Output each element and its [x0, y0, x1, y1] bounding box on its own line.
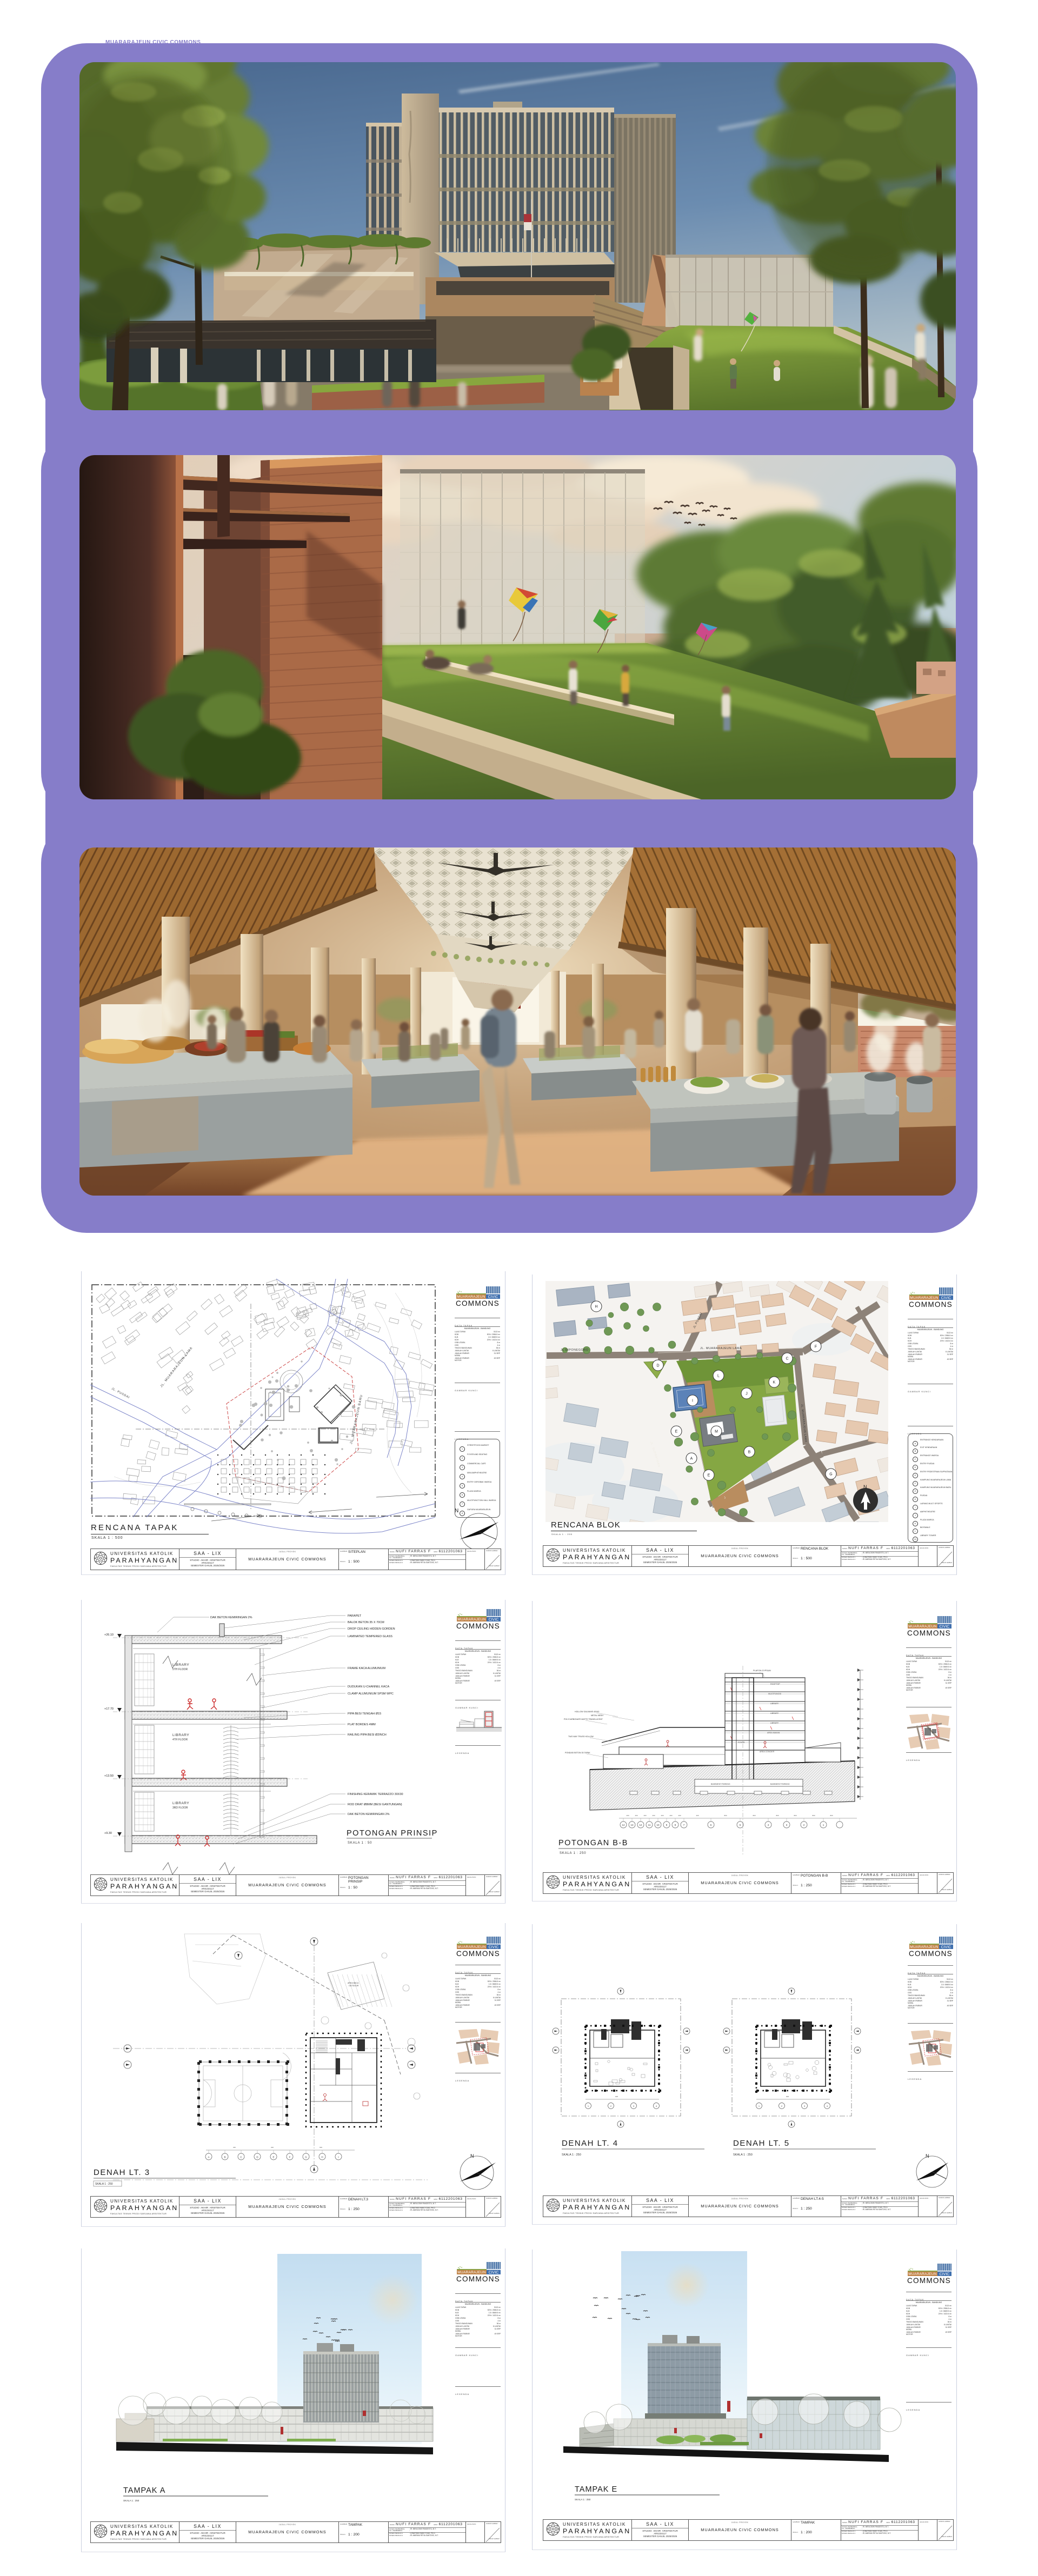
svg-text:3: 3 — [786, 1824, 788, 1826]
svg-text:MUARARAJEUN: MUARARAJEUN — [908, 1625, 936, 1629]
svg-text:JL. MUARARAJEUN BARU: JL. MUARARAJEUN BARU — [350, 1394, 363, 1445]
svg-text:TAMPAK E: TAMPAK E — [575, 2485, 617, 2494]
svg-text:COMMONS: COMMONS — [456, 1299, 500, 1307]
svg-text:4: 4 — [656, 2105, 657, 2107]
svg-text:800: 800 — [724, 1814, 727, 1817]
svg-text:E: E — [675, 1430, 678, 1434]
svg-text:N: N — [926, 2153, 929, 2159]
svg-text:CIVIC: CIVIC — [489, 2271, 499, 2274]
svg-text:COMMONS: COMMONS — [909, 1300, 953, 1309]
svg-text:3: 3 — [804, 2105, 806, 2107]
svg-text:MUARARAJEUN: MUARARAJEUN — [457, 1945, 485, 1949]
svg-text:D: D — [256, 2156, 258, 2159]
svg-text:A: A — [690, 1457, 693, 1461]
svg-text:N: N — [863, 1484, 867, 1490]
svg-text:LIBRARY: LIBRARY — [770, 1722, 779, 1724]
svg-text:12: 12 — [639, 1824, 642, 1826]
svg-text:10: 10 — [656, 1824, 660, 1826]
svg-text:SKALA 1 : 250: SKALA 1 : 250 — [575, 2498, 591, 2501]
svg-text:B: B — [224, 2156, 225, 2159]
svg-text:MULTIFUNGSI: MULTIFUNGSI — [768, 1693, 781, 1695]
svg-text:MUARARAJEUN: MUARARAJEUN — [457, 1618, 485, 1621]
svg-text:POTONGAN PRINSIP: POTONGAN PRINSIP — [347, 1829, 438, 1838]
svg-text:PIPA BESI TENGAH Ø15: PIPA BESI TENGAH Ø15 — [348, 1712, 381, 1716]
svg-text:COMMONS: COMMONS — [907, 1629, 951, 1637]
svg-text:1: 1 — [588, 2105, 589, 2107]
svg-text:+26.10: +26.10 — [104, 1633, 114, 1637]
svg-text:CIVIC: CIVIC — [940, 1625, 950, 1629]
svg-text:+9.30: +9.30 — [104, 1832, 112, 1835]
svg-text:CIVIC: CIVIC — [940, 2272, 950, 2276]
svg-text:4TH FLOOR: 4TH FLOOR — [172, 1738, 188, 1741]
svg-text:PLAT BORDES 4MM: PLAT BORDES 4MM — [348, 1723, 376, 1726]
svg-text:CIVIC: CIVIC — [489, 1618, 499, 1621]
svg-text:DENAH LT. 5: DENAH LT. 5 — [733, 2139, 790, 2148]
svg-text:B: B — [748, 1451, 751, 1454]
svg-text:SKALA 1 : 250: SKALA 1 : 250 — [95, 2183, 113, 2186]
svg-text:LIBRARY: LIBRARY — [770, 1712, 779, 1714]
svg-text:AREA MAKAN: AREA MAKAN — [767, 1732, 780, 1734]
svg-text:400: 400 — [678, 1814, 681, 1817]
svg-text:E: E — [272, 2156, 274, 2159]
svg-text:SKALA 1 : 250: SKALA 1 : 250 — [123, 2499, 139, 2502]
svg-text:14: 14 — [622, 1824, 625, 1826]
svg-text:400: 400 — [643, 1814, 646, 1817]
svg-text:2: 2 — [610, 2105, 612, 2107]
svg-text:LIBRARY: LIBRARY — [770, 1703, 779, 1705]
svg-text:F: F — [289, 2156, 291, 2159]
svg-text:A: A — [208, 2156, 209, 2159]
svg-text:1: 1 — [823, 1824, 824, 1826]
svg-text:CIVIC: CIVIC — [489, 1945, 499, 1949]
svg-text:MUARARAJEUN: MUARARAJEUN — [457, 2271, 485, 2274]
svg-text:AREA CONCIER: AREA CONCIER — [760, 1751, 775, 1753]
svg-text:LIBRARY: LIBRARY — [172, 1733, 189, 1737]
svg-text:H: H — [321, 2156, 323, 2159]
svg-text:JL. PUSDAI: JL. PUSDAI — [111, 1387, 130, 1399]
svg-text:1: 1 — [758, 2105, 760, 2107]
svg-text:4: 4 — [768, 1824, 769, 1826]
svg-text:908: 908 — [786, 2095, 789, 2098]
svg-text:F: F — [815, 1345, 817, 1349]
svg-text:JL DIPONEGORO: JL DIPONEGORO — [561, 1349, 589, 1352]
svg-text:METAL MESH: METAL MESH — [591, 1714, 603, 1717]
svg-text:+13.50: +13.50 — [104, 1774, 114, 1778]
svg-text:7: 7 — [683, 1824, 685, 1826]
svg-text:400: 400 — [652, 1814, 655, 1817]
svg-text:OUTDOOR: OUTDOOR — [349, 1985, 359, 1987]
svg-text:CIVIC: CIVIC — [941, 1296, 951, 1300]
svg-text:LIBRARY: LIBRARY — [172, 1663, 189, 1667]
svg-text:DENAH LT. 4: DENAH LT. 4 — [562, 2139, 618, 2148]
svg-text:BASEMENT PARKING: BASEMENT PARKING — [770, 1783, 790, 1785]
svg-text:MUARARAJEUN: MUARARAJEUN — [457, 1295, 485, 1299]
svg-text:4: 4 — [827, 2105, 828, 2107]
svg-text:PONDASI BETON 35 TAPAK: PONDASI BETON 35 TAPAK — [565, 1752, 590, 1754]
svg-text:SKALA 1 : 250: SKALA 1 : 250 — [562, 2153, 581, 2157]
svg-text:I: I — [692, 1399, 693, 1403]
svg-text:E: E — [708, 1474, 710, 1478]
svg-text:J: J — [746, 1392, 748, 1396]
svg-text:I: I — [338, 2156, 338, 2159]
svg-text:LAMINATED TEMPERED GLASS: LAMINATED TEMPERED GLASS — [348, 1635, 392, 1638]
svg-text:+17.70: +17.70 — [104, 1707, 114, 1711]
svg-text:400: 400 — [635, 1814, 637, 1817]
svg-text:800: 800 — [812, 1814, 815, 1817]
svg-text:DROP CEILING HIDDEN GORDEN: DROP CEILING HIDDEN GORDEN — [348, 1627, 395, 1631]
svg-text:800: 800 — [794, 1814, 796, 1817]
svg-text:DAK BETON KEMIRINGAN 2%: DAK BETON KEMIRINGAN 2% — [210, 1616, 252, 1619]
svg-text:COMMONS: COMMONS — [456, 1622, 500, 1630]
svg-text:340: 340 — [233, 2146, 236, 2148]
svg-text:9: 9 — [666, 1824, 668, 1826]
svg-text:FINISHING KERAMIK TERRAZZO 30X: FINISHING KERAMIK TERRAZZO 30X30 — [348, 1793, 403, 1796]
svg-text:D: D — [656, 1364, 659, 1368]
svg-text:400: 400 — [661, 1814, 663, 1817]
svg-text:TAMPAK A: TAMPAK A — [123, 2486, 165, 2495]
svg-text:COMMONS: COMMONS — [909, 1950, 953, 1958]
svg-text:PARAPET: PARAPET — [348, 1614, 362, 1618]
svg-text:COMMONS: COMMONS — [907, 2277, 951, 2285]
svg-text:5TH FLOOR: 5TH FLOOR — [172, 1668, 188, 1671]
svg-text:SKALA 1 : 250: SKALA 1 : 250 — [560, 1852, 586, 1855]
svg-text:RAILING PIPA BESI Ø2INCH: RAILING PIPA BESI Ø2INCH — [348, 1733, 387, 1737]
svg-text:M: M — [715, 1430, 718, 1434]
svg-text:DUDUKAN U-CHANNEL KACA: DUDUKAN U-CHANNEL KACA — [348, 1685, 389, 1689]
svg-text:630: 630 — [320, 2146, 322, 2148]
svg-text:ROD DRAT Ø8MM (BESI GANTUNGAN): ROD DRAT Ø8MM (BESI GANTUNGAN) — [348, 1803, 402, 1806]
svg-text:POLYCARBONATE MATTE TRANSLUCEN: POLYCARBONATE MATTE TRANSLUCENT — [564, 1718, 603, 1720]
svg-text:K: K — [773, 1381, 776, 1385]
svg-text:BASEMENT PARKING: BASEMENT PARKING — [711, 1783, 730, 1785]
svg-text:400: 400 — [696, 1814, 698, 1817]
svg-text:ROOFTOP: ROOFTOP — [770, 1683, 780, 1685]
svg-text:400: 400 — [626, 1814, 629, 1817]
svg-text:MUARARAJEUN: MUARARAJEUN — [908, 2272, 936, 2276]
svg-text:C: C — [786, 1357, 788, 1361]
svg-text:BALOK BETON 35 X 70CM: BALOK BETON 35 X 70CM — [348, 1621, 384, 1624]
svg-text:TWO WAY TRUSS HOLLOW: TWO WAY TRUSS HOLLOW — [568, 1736, 594, 1738]
svg-text:JL. MUARARAJEUN LAMA: JL. MUARARAJEUN LAMA — [160, 1346, 194, 1388]
svg-text:800: 800 — [830, 1814, 833, 1817]
svg-text:POTONGAN B-B: POTONGAN B-B — [558, 1839, 628, 1847]
svg-text:HOLLOW GALVANIS 40X40: HOLLOW GALVANIS 40X40 — [575, 1711, 599, 1713]
svg-text:CLAMP ALUMUNIUM SPSM WPC: CLAMP ALUMUNIUM SPSM WPC — [348, 1692, 394, 1696]
svg-text:LIBRARY: LIBRARY — [172, 1801, 189, 1805]
svg-text:800: 800 — [776, 1814, 778, 1817]
svg-text:340: 340 — [271, 2146, 274, 2148]
svg-text:400: 400 — [669, 1814, 672, 1817]
svg-text:FRAME KACA ALUMUNIUM: FRAME KACA ALUMUNIUM — [348, 1667, 385, 1670]
svg-text:PLAFON GYPSUM: PLAFON GYPSUM — [753, 1670, 771, 1672]
svg-text:CIVIC: CIVIC — [488, 1295, 498, 1299]
svg-text:CIVIC: CIVIC — [941, 1945, 951, 1949]
svg-text:SKALA 1 : 50: SKALA 1 : 50 — [348, 1841, 372, 1845]
svg-text:800: 800 — [753, 1814, 755, 1817]
svg-text:13: 13 — [630, 1824, 634, 1826]
svg-text:COMMONS: COMMONS — [456, 2275, 500, 2283]
svg-text:C: C — [240, 2156, 242, 2159]
svg-text:G: G — [305, 2156, 307, 2159]
svg-text:FOYER: FOYER — [738, 1741, 745, 1744]
svg-text:DAK BETON KEMIRINGAN 2%: DAK BETON KEMIRINGAN 2% — [348, 1813, 390, 1816]
svg-text:2: 2 — [803, 1824, 805, 1826]
svg-text:MUARARAJEUN: MUARARAJEUN — [910, 1296, 938, 1300]
svg-text:JL. MUARARAJEUN LAMA: JL. MUARARAJEUN LAMA — [700, 1347, 742, 1350]
svg-text:11: 11 — [648, 1824, 651, 1826]
svg-text:DENAH LT. 3: DENAH LT. 3 — [94, 2168, 150, 2177]
svg-text:G: G — [829, 1473, 832, 1477]
svg-text:COMMONS: COMMONS — [456, 1950, 500, 1958]
svg-text:AREA BACA: AREA BACA — [348, 1982, 359, 1984]
svg-text:908: 908 — [615, 2095, 618, 2098]
svg-text:8: 8 — [675, 1824, 676, 1826]
svg-text:SKALA 1 : 250: SKALA 1 : 250 — [733, 2153, 753, 2157]
svg-text:N: N — [470, 2153, 474, 2159]
svg-text:2: 2 — [781, 2105, 783, 2107]
svg-text:3RD FLOOR: 3RD FLOOR — [172, 1806, 188, 1810]
svg-text:H: H — [595, 1305, 597, 1309]
svg-text:MUARARAJEUN: MUARARAJEUN — [910, 1945, 938, 1949]
svg-text:5: 5 — [740, 1824, 741, 1826]
svg-text:L: L — [717, 1374, 720, 1378]
svg-text:6: 6 — [710, 1824, 712, 1826]
svg-text:3: 3 — [633, 2105, 635, 2107]
